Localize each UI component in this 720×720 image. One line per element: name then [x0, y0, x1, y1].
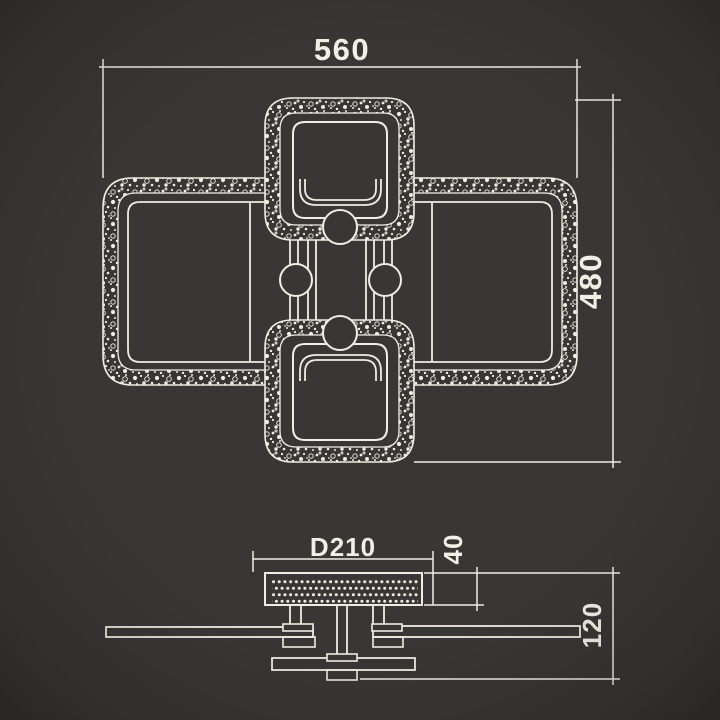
right-arm-profile: [373, 626, 580, 637]
side-view: D210 40 120: [106, 532, 620, 685]
canopy-dot-grid: [272, 577, 418, 603]
dimension-height-label: 480: [573, 253, 608, 309]
ball-bottom: [323, 316, 357, 350]
ball-right: [369, 264, 401, 296]
canopy-box: [265, 573, 422, 605]
right-arm-bracket: [373, 637, 403, 647]
left-stem-foot: [283, 624, 313, 631]
ball-top: [323, 210, 357, 244]
bottom-arm-bracket: [327, 670, 357, 680]
center-stem-foot: [327, 654, 357, 661]
right-stem-foot: [372, 624, 402, 631]
technical-drawing: 560 480: [0, 0, 720, 720]
dimension-canopy-diameter-label: D210: [310, 532, 376, 562]
left-arm-profile: [106, 627, 313, 637]
plan-view: 560 480: [99, 32, 621, 468]
dimension-width-label: 560: [314, 32, 370, 67]
ball-left: [280, 264, 312, 296]
drawing-canvas: 560 480: [0, 0, 720, 720]
dimension-canopy-height-label: 40: [438, 534, 468, 565]
dimension-total-height-label: 120: [577, 602, 607, 648]
left-arm-bracket: [283, 637, 315, 647]
